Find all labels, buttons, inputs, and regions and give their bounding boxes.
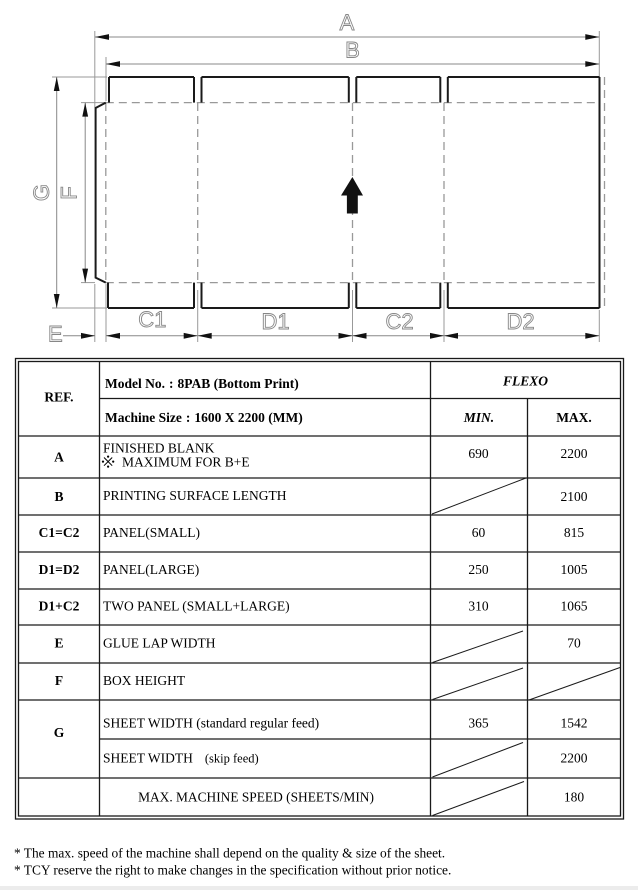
svg-text:A: A: [54, 450, 64, 465]
svg-text:SHEET WIDTH (standard regular: SHEET WIDTH (standard regular feed): [103, 716, 319, 731]
svg-text:MAX.: MAX.: [556, 410, 592, 425]
svg-text:REF.: REF.: [44, 390, 73, 405]
svg-text:F: F: [55, 673, 63, 688]
svg-text:D1+C2: D1+C2: [39, 599, 80, 614]
svg-text:F: F: [57, 186, 82, 199]
svg-text:E: E: [48, 322, 63, 347]
svg-text:E: E: [54, 636, 63, 651]
svg-text:70: 70: [567, 636, 581, 651]
svg-text:2100: 2100: [561, 489, 588, 504]
svg-text:C2: C2: [385, 309, 413, 334]
svg-text:2200: 2200: [561, 446, 588, 461]
svg-text:G: G: [29, 184, 54, 201]
svg-text:310: 310: [468, 599, 489, 614]
svg-text:SHEET WIDTH(skip feed): SHEET WIDTH(skip feed): [103, 751, 259, 766]
svg-text:B: B: [54, 489, 63, 504]
svg-text:GLUE LAP WIDTH: GLUE LAP WIDTH: [103, 636, 216, 651]
svg-text:D1: D1: [261, 309, 289, 334]
svg-text:PANEL(LARGE): PANEL(LARGE): [103, 562, 199, 577]
svg-text:MAXIMUM FOR B+E: MAXIMUM FOR B+E: [122, 455, 250, 470]
svg-text:TWO PANEL (SMALL+LARGE): TWO PANEL (SMALL+LARGE): [103, 599, 290, 614]
svg-text:* The max. speed of the machin: * The max. speed of the machine shall de…: [14, 846, 445, 861]
svg-text:FLEXO: FLEXO: [502, 374, 548, 389]
svg-text:C1: C1: [138, 307, 166, 332]
svg-text:60: 60: [472, 525, 486, 540]
svg-text:1005: 1005: [561, 562, 588, 577]
svg-text:365: 365: [468, 716, 489, 731]
svg-text:FINISHED BLANK: FINISHED BLANK: [103, 441, 215, 456]
svg-text:MIN.: MIN.: [463, 410, 494, 425]
svg-text:PANEL(SMALL): PANEL(SMALL): [103, 525, 200, 540]
svg-text:D1=D2: D1=D2: [39, 562, 80, 577]
svg-text:A: A: [340, 10, 355, 35]
svg-text:MAX. MACHINE SPEED (SHEETS/MIN: MAX. MACHINE SPEED (SHEETS/MIN): [138, 790, 374, 805]
svg-text:Machine Size:1600 X 2200 (MM): Machine Size:1600 X 2200 (MM): [105, 410, 303, 425]
svg-text:D2: D2: [506, 309, 534, 334]
svg-text:1065: 1065: [561, 599, 588, 614]
svg-text:690: 690: [468, 446, 489, 461]
svg-text:BOX HEIGHT: BOX HEIGHT: [103, 673, 186, 688]
svg-text:250: 250: [468, 562, 489, 577]
svg-text:PRINTING SURFACE LENGTH: PRINTING SURFACE LENGTH: [103, 488, 287, 503]
svg-text:815: 815: [564, 525, 585, 540]
svg-text:Model No.:8PAB (Bottom Print): Model No.:8PAB (Bottom Print): [105, 376, 299, 391]
svg-text:B: B: [345, 38, 360, 63]
svg-text:180: 180: [564, 790, 585, 805]
svg-text:* TCY reserve the right to mak: * TCY reserve the right to make changes …: [14, 863, 451, 878]
svg-text:G: G: [54, 725, 65, 740]
svg-text:1542: 1542: [561, 716, 588, 731]
svg-text:C1=C2: C1=C2: [39, 525, 80, 540]
svg-text:2200: 2200: [561, 751, 588, 766]
